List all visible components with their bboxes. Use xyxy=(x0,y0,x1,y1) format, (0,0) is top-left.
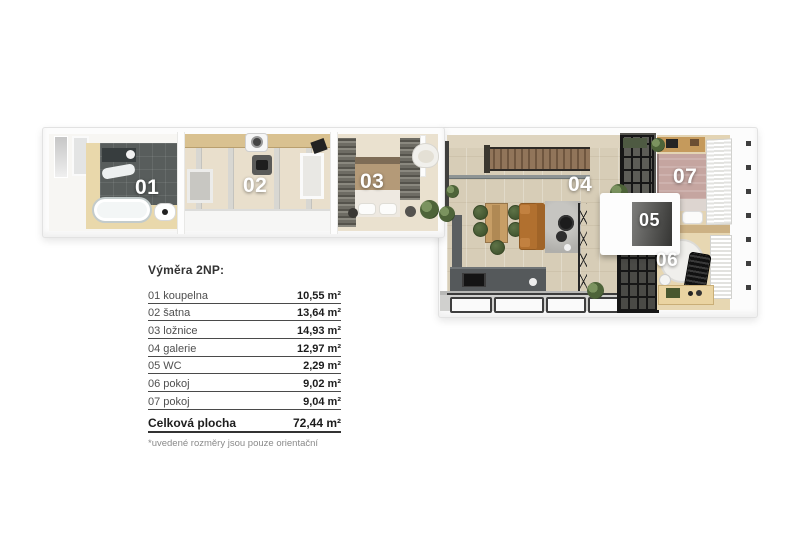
pouf xyxy=(348,208,358,218)
legend-row: 07 pokoj 9,04 m² xyxy=(148,392,341,410)
wall-anchor xyxy=(746,213,751,218)
armchair-seat xyxy=(418,150,434,163)
stair-newel xyxy=(484,145,490,173)
room-area: 12,97 m² xyxy=(297,343,341,355)
bed-pillow xyxy=(682,211,703,224)
legend-row: 03 ložnice 14,93 m² xyxy=(148,321,341,339)
room-name: 01 koupelna xyxy=(148,290,208,302)
total-row: Celková plocha 72,44 m² xyxy=(148,415,341,433)
decor-bowl xyxy=(564,244,571,251)
wall-02-03 xyxy=(330,132,338,234)
room-name: 03 ložnice xyxy=(148,325,198,337)
sink xyxy=(126,150,135,159)
desk-item xyxy=(688,291,693,296)
room-label-01: 01 xyxy=(135,177,159,198)
staircase xyxy=(488,147,590,171)
total-label: Celková plocha xyxy=(148,416,236,430)
laptop xyxy=(666,139,678,148)
wall-anchor xyxy=(746,189,751,194)
dryer-door xyxy=(256,160,268,170)
room-area: 10,55 m² xyxy=(297,290,341,302)
basin-tap xyxy=(162,209,168,215)
glass-floor-panel xyxy=(450,297,492,313)
legend-row: 05 WC 2,29 m² xyxy=(148,357,341,375)
legend-rows: 01 koupelna 10,55 m² 02 šatna 13,64 m² 0… xyxy=(148,286,341,410)
plant xyxy=(446,185,459,198)
room-area: 14,93 m² xyxy=(297,325,341,337)
glass-floor-panel xyxy=(546,297,586,313)
wall-anchor xyxy=(746,285,751,290)
wall-anchor xyxy=(746,237,751,242)
room-name: 02 šatna xyxy=(148,307,190,319)
glass-floor-panel xyxy=(588,297,620,313)
room-area: 2,29 m² xyxy=(303,360,341,372)
closet-door xyxy=(54,136,68,178)
plant xyxy=(439,206,455,222)
glass-floor-panel xyxy=(494,297,544,313)
desk-item xyxy=(690,139,699,146)
sofa-cushion xyxy=(520,205,530,214)
room-label-04: 04 xyxy=(568,174,592,195)
sink-round xyxy=(529,278,537,286)
room-label-07: 07 xyxy=(673,166,697,187)
legend-title: Výměra 2NP: xyxy=(148,263,341,277)
room-label-06: 06 xyxy=(656,251,678,270)
coffee-table-small xyxy=(556,231,567,242)
room-label-03: 03 xyxy=(360,171,384,192)
framed-wall-panel xyxy=(300,153,324,199)
bed-pillow xyxy=(379,203,397,215)
wall-01-02 xyxy=(177,132,185,234)
room-name: 06 pokoj xyxy=(148,378,190,390)
legend-footnote: *uvedené rozměry jsou pouze orientační xyxy=(148,438,341,449)
room-name: 07 pokoj xyxy=(148,396,190,408)
room-area: 13,64 m² xyxy=(297,307,341,319)
wall-anchor xyxy=(746,165,751,170)
legend-row: 01 koupelna 10,55 m² xyxy=(148,286,341,304)
room-label-02: 02 xyxy=(243,175,267,196)
lower-cabinets xyxy=(185,209,330,231)
bed-headboard xyxy=(355,157,400,164)
plant xyxy=(587,282,604,299)
dining-chair xyxy=(473,205,488,220)
void-railing xyxy=(445,141,449,209)
laptop-green xyxy=(666,288,680,298)
glass-partition xyxy=(578,203,587,295)
bed-pillow xyxy=(358,203,376,215)
room-area: 9,04 m² xyxy=(303,396,341,408)
framed-wall-panel xyxy=(187,169,213,203)
room-name: 05 WC xyxy=(148,360,182,372)
legend-row: 06 pokoj 9,02 m² xyxy=(148,374,341,392)
room-label-05: 05 xyxy=(639,211,660,229)
wall-anchor xyxy=(746,261,751,266)
desk-item xyxy=(696,290,702,296)
plant xyxy=(420,200,439,219)
cooktop xyxy=(462,273,486,287)
bathtub xyxy=(92,197,152,223)
washer-door xyxy=(251,136,263,148)
legend-row: 02 šatna 13,64 m² xyxy=(148,304,341,322)
area-legend: Výměra 2NP: 01 koupelna 10,55 m² 02 šatn… xyxy=(148,263,341,449)
coffee-table xyxy=(558,215,574,231)
window-blinds xyxy=(706,138,732,225)
dining-chair xyxy=(473,222,488,237)
room-area: 9,02 m² xyxy=(303,378,341,390)
glass-grid-lower xyxy=(617,249,659,313)
plant xyxy=(651,138,665,152)
grid-greenery xyxy=(623,138,647,148)
sofa-cushion xyxy=(520,238,530,247)
table-runner xyxy=(492,205,500,241)
page: 01 02 03 xyxy=(0,0,800,533)
side-table xyxy=(405,206,416,217)
legend-row: 04 galerie 12,97 m² xyxy=(148,339,341,357)
total-value: 72,44 m² xyxy=(293,416,341,430)
dining-chair xyxy=(490,240,505,255)
room-name: 04 galerie xyxy=(148,343,196,355)
wall-anchor xyxy=(746,141,751,146)
